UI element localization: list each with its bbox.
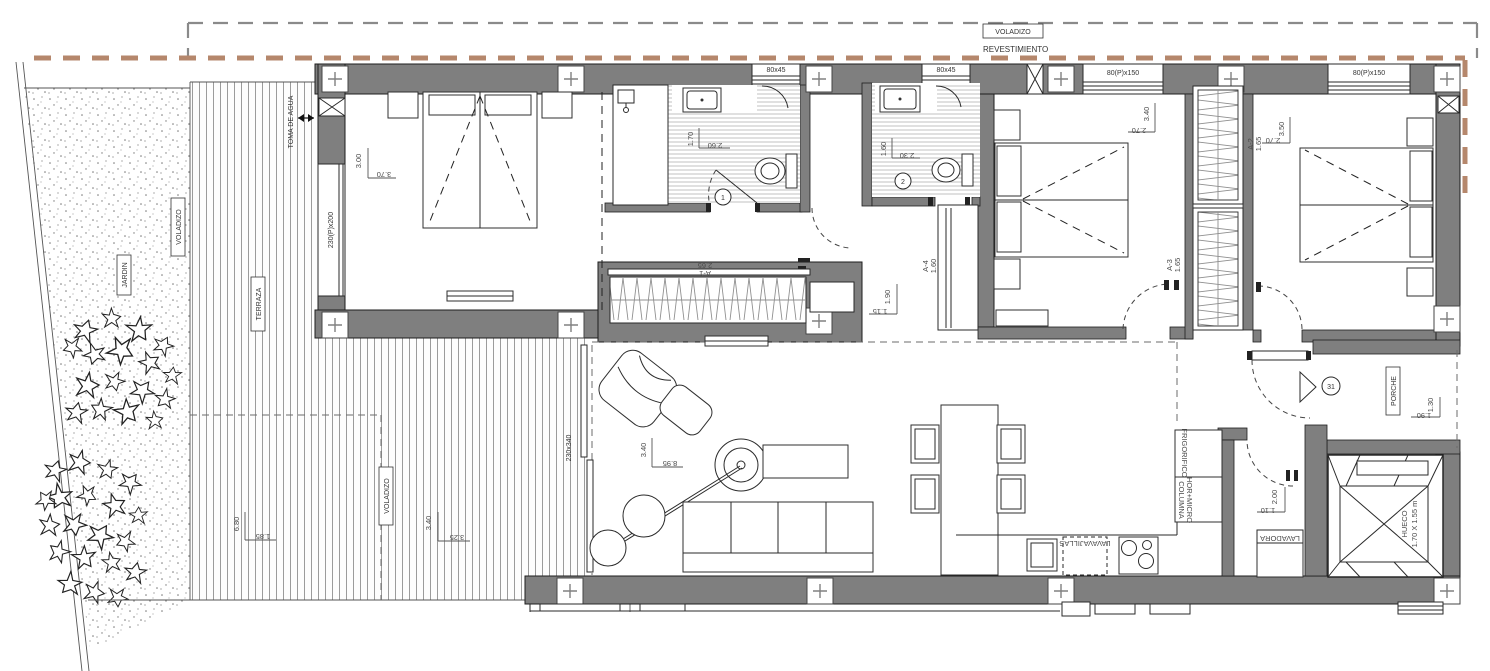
dining-area [911,405,1025,575]
pillar [1434,306,1460,332]
dim-laundry-w: 1.10 [1261,506,1276,515]
dresser [996,310,1048,326]
dim-bedroom3-h: 3.50 [1277,122,1286,137]
terraza-label: TERRAZA [251,277,265,331]
toma-de-agua-text: TOMA DE AGUA [288,95,295,148]
sink [683,88,721,112]
unit-number-text: 31 [1327,384,1335,391]
dim-bath1-h: 1.70 [686,132,695,147]
bath2-number-text: 2 [901,179,905,186]
dim-laundry-h: 2.00 [1270,490,1279,505]
dim-bedroom1-w: 3.70 [377,170,392,179]
hueco-label: HUECO [1400,510,1409,537]
pillow [485,95,531,115]
porch-south-wall [1327,440,1460,454]
hall-door-arc [812,208,852,248]
dim-hall-h: 1.90 [883,290,892,305]
nightstand [994,259,1020,289]
pillow [997,202,1021,252]
bath2-number: 2 [895,173,911,189]
laundry-hueco-wall [1305,425,1327,576]
window-bedroom3: 80(P)x150 [1328,64,1410,94]
bath1-east-wall [800,85,810,212]
shutter-box-icon [1438,96,1459,113]
bedroom2-dim: 3.40 2.70 [1128,103,1155,135]
hall-dim: 1.90 1.15 [869,284,897,316]
window-bedroom1: 230(P)x200 [318,164,345,296]
dishwasher: LAVAVAJILLAS [1059,537,1110,575]
fridge-label: FRIGORIFICO [1180,428,1189,477]
window-bath2-label: 80x45 [936,67,955,74]
shower [613,85,668,205]
hob [1119,537,1158,574]
south-wall [525,576,1460,604]
hueco-shaft: HUECO 1.70 X 1.55 m [1328,455,1443,577]
dim-bath1-w: 2.60 [708,141,723,150]
window-bath2: 80x45 [922,64,970,86]
wardrobe-a3: A-3 1.65 [1165,208,1243,330]
entry: 31 [1247,351,1340,418]
dim-porch-h: 1.30 [1426,398,1435,413]
laundry: LAVADORA 2.00 1.10 [1247,440,1303,577]
dim-bedroom2-w: 2.70 [1132,126,1147,135]
oven-column-label-2: HOR+MICRO [1185,477,1194,523]
window-bath1-label: 80x45 [766,67,785,74]
oven-column-label-1: COLUMNA [1177,481,1186,519]
unit-number-badge: 31 [1322,377,1340,395]
wardrobe-a2-width: 1.65 [1254,137,1263,152]
gravel-texture [24,88,190,652]
bedroom2: 3.40 2.70 [994,103,1179,329]
dim-bath2-h: 1.60 [879,142,888,157]
bedroom2-east-wall [1185,94,1193,339]
dim-terrace-b-w: 3.25 [450,533,465,542]
bedroom2-door [1123,280,1179,329]
bedroom3-dim: 3.50 2.70 [1262,117,1290,145]
kitchen-sink [1027,539,1057,571]
bedroom3-west-wall [1243,94,1253,330]
dim-living-h: 3.40 [639,443,648,458]
pillar [1048,66,1074,92]
jardin-text: JARDIN [122,262,129,287]
bath2-west-wall [862,83,872,206]
sliding-door-label: 230x340 [566,434,573,461]
floor-plan-canvas: VOLADIZO JARDIN VOLADIZO REVESTIMIENTO T… [0,0,1490,671]
dim-terrace-b-h: 3.40 [424,516,433,531]
voladizo-left-text: VOLADIZO [176,209,183,245]
pillow [1410,207,1432,257]
shaft-vent [1357,461,1428,475]
porch-north-wall [1313,340,1460,354]
washing-machine-label: LAVADORA [1260,534,1300,543]
bath1-number: 1 [715,189,731,205]
bedroom1-dim: 3.00 3.70 [354,148,396,179]
nightstand [1407,118,1433,146]
pillar [558,312,584,338]
bath1-number-text: 1 [721,195,725,202]
dim-bedroom2-h: 3.40 [1142,107,1151,122]
entry-door-panel [1252,351,1308,360]
bath1-south-wall-b [757,203,802,212]
pillow [997,146,1021,196]
dim-living-w: 8.95 [663,459,678,468]
terraza-text: TERRAZA [256,287,263,320]
chair [997,475,1025,513]
sofa [683,502,873,572]
dim-terrace-a-w: 1.85 [256,532,271,541]
bedroom3-door [1256,282,1302,329]
shutter-box-icon [1027,64,1043,94]
twin-beds [995,143,1128,257]
pillar [1048,578,1074,604]
bathroom1: 1 1.70 2.60 [613,85,800,212]
nightstand [994,110,1020,140]
twin-beds [1300,148,1433,262]
pillow [429,95,475,115]
pillar [1434,66,1460,92]
bedroom3: 3.50 2.70 [1256,117,1433,329]
porch-dim: 1.30 1.90 [1411,397,1440,420]
wardrobe-a1-width: 2.65 [698,261,713,270]
pillar [322,66,348,92]
window-bath1: 80x45 [752,64,800,86]
wardrobe-a1-name: A-1 [699,269,711,278]
roof-overhang-dashed-line [188,23,1477,60]
sink [880,86,920,112]
entry-arrow-icon [1300,372,1316,402]
coffee-table [763,445,848,478]
wardrobe-a4: A-4 1.60 [921,205,978,330]
dim-terrace-a-h: 6.80 [232,517,241,532]
dim-bedroom1-h: 3.00 [354,154,363,169]
revestimiento-text: REVESTIMIENTO [983,45,1048,54]
window-bedroom2: 80(P)x150 [1083,64,1163,94]
voladizo-top-text: VOLADIZO [995,29,1031,36]
dishwasher-label: LAVAVAJILLAS [1059,539,1110,548]
porch: PORCHE 1.30 1.90 [1386,367,1440,420]
bath2-south-wall-a [872,197,935,206]
wardrobe-a3-width: 1.65 [1173,258,1182,273]
jardin-label: JARDIN [117,255,131,295]
floor-plan-drawing: VOLADIZO JARDIN VOLADIZO REVESTIMIENTO T… [0,0,1490,671]
voladizo-terrace-label: VOLADIZO [379,467,393,525]
living-dim: 3.40 8.95 [639,438,683,468]
voladizo-left-label: VOLADIZO [171,198,185,256]
kitchen-laundry-wall [1222,440,1234,576]
voladizo-terrace-text: VOLADIZO [384,478,391,514]
voladizo-top-label: VOLADIZO [983,24,1043,38]
window-bedroom1-label: 230(P)x200 [328,212,335,248]
window-bedroom2-label: 80(P)x150 [1107,70,1139,77]
dim-hall-w: 1.15 [873,307,888,316]
pillar [558,66,584,92]
dim-porch-w: 1.90 [1417,411,1432,420]
washing-machine: LAVADORA [1257,530,1303,577]
chair [997,425,1025,463]
nightstand [388,92,418,118]
living-room: 230x340 3.40 8.95 [566,336,873,572]
shutter-box-icon [319,98,345,116]
window-bedroom3-label: 80(P)x150 [1353,70,1385,77]
porche-label: PORCHE [1386,367,1400,415]
chair [911,425,939,463]
pillar [557,578,583,604]
wardrobe-a1-niche [810,282,854,312]
pillar [1434,578,1460,604]
dining-table [941,405,998,575]
bench [447,291,513,301]
pillar [807,578,833,604]
pillar [806,66,832,92]
dim-bath2-w: 2.30 [900,151,915,160]
double-bed [423,92,537,228]
nightstand [542,92,572,118]
bedroom3-south-stub [1253,330,1261,342]
pillow [1410,151,1432,201]
bedroom1-south-wall [315,310,600,338]
pillar [322,312,348,338]
bathroom2: 2 1.60 2.30 [872,83,980,206]
hueco-size: 1.70 X 1.55 m [1410,501,1419,548]
laundry-dim: 2.00 1.10 [1257,487,1285,515]
bedroom1: 3.00 3.70 [354,92,602,310]
porche-text: PORCHE [1391,376,1398,406]
bedroom2-south-wall-a [978,327,1126,339]
dim-bedroom3-w: 2.70 [1266,136,1281,145]
fridge-column: FRIGORIFICO COLUMNA HOR+MICRO [1175,428,1222,523]
chair [911,475,939,513]
nightstand [1407,268,1433,296]
tv-console [705,336,768,346]
wardrobe-a4-width: 1.60 [929,259,938,274]
